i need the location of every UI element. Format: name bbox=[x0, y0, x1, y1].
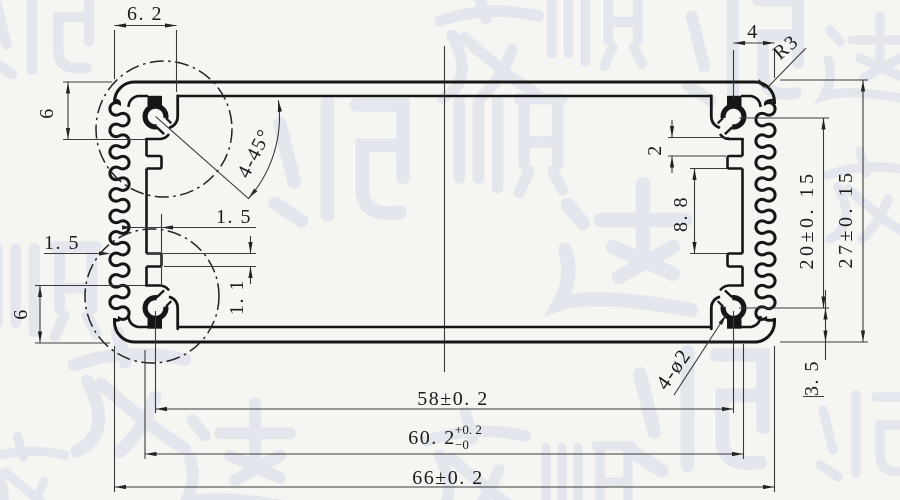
svg-text:8. 8: 8. 8 bbox=[670, 196, 692, 232]
svg-text:6. 2: 6. 2 bbox=[127, 3, 163, 25]
svg-text:−0: −0 bbox=[455, 437, 469, 452]
svg-text:1. 5: 1. 5 bbox=[44, 232, 80, 254]
svg-text:1. 5: 1. 5 bbox=[216, 206, 252, 228]
svg-text:6: 6 bbox=[36, 107, 58, 119]
svg-text:2: 2 bbox=[644, 144, 666, 156]
svg-text:3. 5: 3. 5 bbox=[801, 360, 823, 396]
svg-text:4: 4 bbox=[747, 21, 759, 43]
svg-text:6: 6 bbox=[10, 308, 32, 320]
svg-text:60. 2: 60. 2 bbox=[408, 427, 456, 449]
svg-text:+0. 2: +0. 2 bbox=[455, 422, 482, 437]
svg-text:27±0. 15: 27±0. 15 bbox=[835, 170, 857, 269]
svg-text:58±0. 2: 58±0. 2 bbox=[417, 388, 488, 410]
svg-text:20±0. 15: 20±0. 15 bbox=[796, 171, 818, 270]
svg-text:66±0. 2: 66±0. 2 bbox=[412, 467, 483, 489]
svg-text:1. 1: 1. 1 bbox=[226, 279, 248, 315]
